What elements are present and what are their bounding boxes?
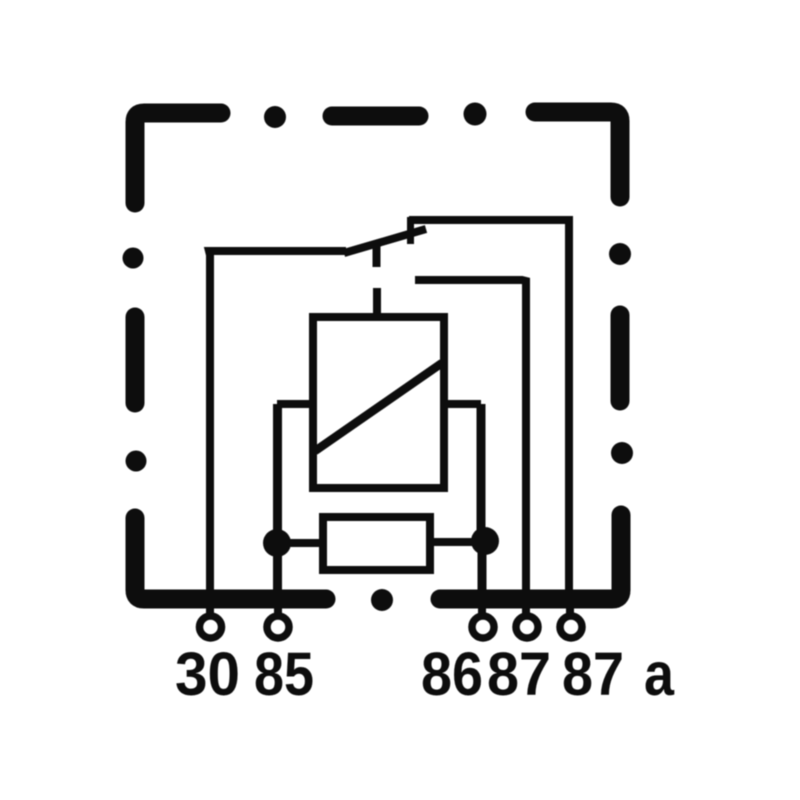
svg-text:87: 87 — [487, 640, 551, 708]
svg-text:87: 87 — [562, 640, 624, 708]
svg-text:30: 30 — [175, 640, 240, 708]
svg-text:85: 85 — [254, 640, 314, 708]
svg-text:86: 86 — [421, 640, 483, 708]
svg-text:a: a — [644, 640, 675, 708]
